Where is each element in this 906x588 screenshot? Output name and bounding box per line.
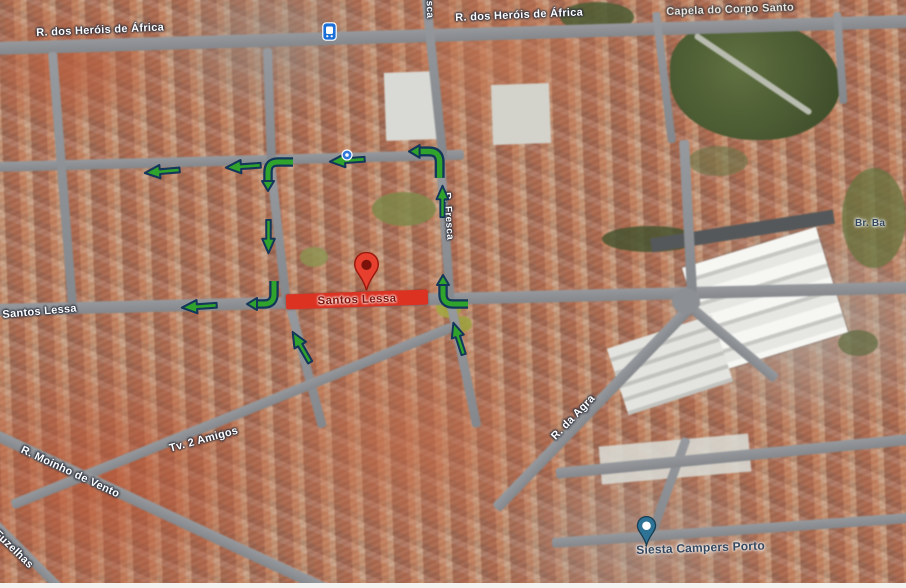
transit-dot-icon[interactable] bbox=[341, 148, 353, 166]
direction-arrow-north bbox=[429, 184, 451, 218]
destination-pin-icon[interactable] bbox=[353, 251, 380, 297]
bus-station-icon[interactable] bbox=[322, 22, 337, 46]
poi-label-br-ba[interactable]: Br. Ba bbox=[855, 218, 885, 229]
street-label-santos-lessa-west: Santos Lessa bbox=[2, 303, 77, 321]
street-label-herois-west: R. dos Heróis de África bbox=[36, 21, 164, 39]
map-canvas[interactable]: Santos Lessa R. dos Heróis de ÁfricaR. d… bbox=[0, 0, 906, 588]
street-label-herois-east: R. dos Heróis de África bbox=[455, 6, 583, 24]
turn-arrow-west-then-south bbox=[260, 156, 296, 197]
street-label-r-moinho-de-vento: R. Moinho de Vento bbox=[19, 444, 121, 500]
turn-arrow-west-then-north bbox=[435, 274, 471, 315]
direction-arrow-west bbox=[179, 296, 218, 321]
turn-arrow-north-then-west bbox=[408, 143, 446, 186]
street-label-tv-2-amigos: Tv. 2 Amigos bbox=[168, 425, 240, 455]
place-pin-icon[interactable] bbox=[636, 515, 657, 552]
direction-arrow-west bbox=[142, 161, 182, 186]
direction-arrow-north bbox=[440, 318, 472, 359]
direction-arrow-south bbox=[260, 219, 282, 255]
street-label-r-da-agra: R. da Agra bbox=[549, 393, 598, 443]
direction-arrow-west bbox=[223, 156, 262, 181]
poi-label-capela-do-corpo-santo[interactable]: Capela do Corpo Santo bbox=[666, 2, 794, 18]
turn-arrow-south-then-west bbox=[246, 278, 282, 319]
street-label-fuzelhas: Fuzelhas bbox=[0, 528, 36, 571]
image-frame-edge bbox=[0, 583, 906, 588]
annotation-overlay: Santos Lessa R. dos Heróis de ÁfricaR. d… bbox=[0, 0, 906, 588]
street-label-fresca-north: Fresca bbox=[423, 0, 435, 18]
direction-arrow-north-west bbox=[279, 325, 318, 371]
